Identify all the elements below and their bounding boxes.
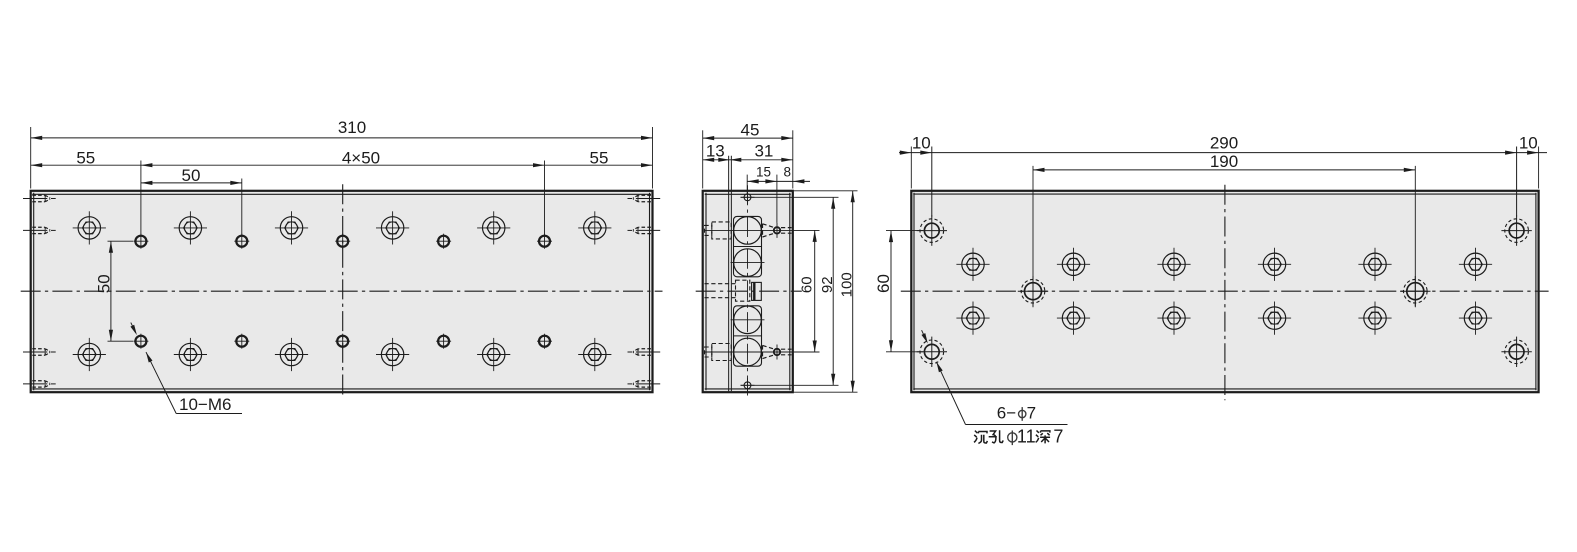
svg-text:8: 8 [784, 165, 792, 180]
svg-text:13: 13 [706, 142, 725, 161]
svg-text:11: 11 [1017, 427, 1036, 447]
svg-text:10: 10 [1519, 134, 1538, 153]
svg-text:6−: 6− [997, 403, 1016, 422]
svg-text:55: 55 [590, 149, 609, 168]
svg-text:92: 92 [819, 276, 836, 293]
svg-text:7: 7 [1053, 427, 1063, 447]
svg-text:50: 50 [182, 166, 201, 185]
svg-text:100: 100 [839, 272, 856, 297]
svg-text:60: 60 [874, 274, 893, 293]
svg-text:50: 50 [94, 274, 113, 293]
svg-text:10−M6: 10−M6 [179, 395, 231, 414]
svg-text:190: 190 [1210, 152, 1238, 171]
svg-text:7: 7 [1027, 403, 1036, 422]
svg-text:55: 55 [76, 149, 95, 168]
svg-text:10: 10 [912, 134, 931, 153]
svg-text:310: 310 [338, 118, 366, 137]
svg-text:45: 45 [741, 120, 760, 139]
svg-text:4×50: 4×50 [342, 149, 380, 168]
svg-text:290: 290 [1210, 134, 1238, 153]
svg-text:15: 15 [756, 165, 771, 180]
svg-text:31: 31 [754, 142, 773, 161]
svg-text:60: 60 [798, 276, 815, 293]
